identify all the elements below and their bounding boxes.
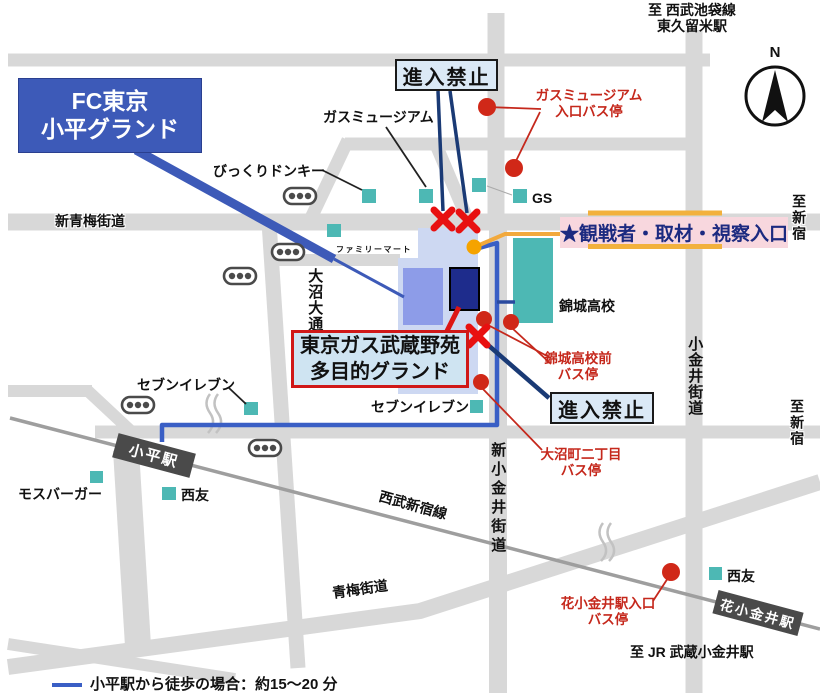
no-entry-label: 進入禁止 xyxy=(403,61,491,90)
direction-line2: 東久留米駅 xyxy=(627,18,757,34)
direction-jr-musashi-koganei: 至 JR 武蔵小金井駅 xyxy=(630,644,754,660)
legend-route-swatch xyxy=(52,683,82,687)
ground-name-line2: 多目的グランド xyxy=(300,359,460,385)
bus-stop-line1: 錦城高校前 xyxy=(532,351,624,367)
landmark-family-mart: ファミリーマート xyxy=(336,245,412,254)
ground-building xyxy=(450,268,479,310)
bus-stop-dot xyxy=(476,311,492,327)
road-station-access xyxy=(126,450,138,646)
traffic-light-icon xyxy=(249,440,281,456)
bus-stop-dot xyxy=(662,563,680,581)
gas-museum-square xyxy=(419,189,433,203)
bus-stop-line2: 入口バス停 xyxy=(528,104,650,120)
landmark-bikkuri-donkey: びっくりドンキー xyxy=(213,163,325,179)
bus-stop-gas-museum-entrance: ガスミュージアム 入口バス停 xyxy=(528,88,650,119)
ground-name-box: 東京ガス武蔵野苑 多目的グランド xyxy=(291,330,469,388)
bus-stop-dot xyxy=(505,159,523,177)
no-entry-box-north: 進入禁止 xyxy=(395,59,498,91)
legend-walk-note: 小平駅から徒歩の場合：約15～20 分 xyxy=(90,676,338,693)
direction-shinjuku-lower: 至新宿 xyxy=(789,399,805,447)
access-map: FC東京 小平グランド 進入禁止 進入禁止 ★観戦者・取材・視察入口 東京ガス武… xyxy=(0,0,820,693)
compass-icon xyxy=(746,67,804,125)
bus-stop-kinjo-mae: 錦城高校前 バス停 xyxy=(532,351,624,382)
fc-title-line2: 小平グランド xyxy=(41,116,179,144)
seiyu-east-square xyxy=(709,567,722,580)
seiyu-west-square xyxy=(162,487,176,500)
traffic-light-icon xyxy=(122,397,154,413)
direction-shinjuku-upper: 至新宿 xyxy=(791,194,807,242)
landmark-seven-eleven-east: セブンイレブン xyxy=(371,399,469,415)
traffic-light-icon xyxy=(284,188,316,204)
bus-stop-oonuma-2chome: 大沼町二丁目 バス停 xyxy=(533,447,629,478)
bus-stop-line2: バス停 xyxy=(533,463,629,479)
corner-shop-square xyxy=(472,178,486,192)
landmark-mos-burger: モスバーガー xyxy=(18,486,102,502)
gs-square xyxy=(513,189,527,203)
gas-museum-pointer xyxy=(386,127,426,187)
spectator-entrance-dot xyxy=(467,240,482,255)
fc-tokyo-ground-title-box: FC東京 小平グランド xyxy=(18,78,202,153)
ground-field xyxy=(403,268,443,325)
banner-bottom-line xyxy=(588,244,722,249)
compass-north-label: N xyxy=(767,44,783,61)
bus-stop-line1: 花小金井駅入口 xyxy=(552,596,664,612)
kinjo-high-school-block xyxy=(513,238,553,323)
direction-seibu-ikebukuro: 至 西武池袋線 東久留米駅 xyxy=(627,2,757,34)
traffic-light-icon xyxy=(224,268,256,284)
no-entry-label: 進入禁止 xyxy=(558,394,646,423)
bus-stop-dot xyxy=(473,374,489,390)
landmark-gs: GS xyxy=(532,190,552,206)
ground-name-line1: 東京ガス武蔵野苑 xyxy=(300,333,460,359)
road-label-shin-koganei: 新小金井街道 xyxy=(489,442,506,556)
landmark-seiyu-east: 西友 xyxy=(727,568,755,584)
bus-stop-line2: バス停 xyxy=(552,612,664,628)
bus-stop-dot xyxy=(503,314,519,330)
bus-stop-dot xyxy=(478,98,496,116)
seven-eleven-west-square xyxy=(244,402,258,415)
bus-stop-line1: ガスミュージアム xyxy=(528,88,650,104)
bus-stop-line1: 大沼町二丁目 xyxy=(533,447,629,463)
landmark-gas-museum: ガスミュージアム xyxy=(323,109,434,125)
direction-line1: 至 西武池袋線 xyxy=(627,2,757,18)
fc-title-line1: FC東京 xyxy=(41,88,179,116)
bus-stop-line2: バス停 xyxy=(532,367,624,383)
no-entry-route-1 xyxy=(438,91,443,211)
mos-burger-square xyxy=(90,471,103,483)
landmark-seiyu-west: 西友 xyxy=(181,487,209,503)
family-mart-square xyxy=(327,224,341,237)
traffic-light-icon xyxy=(272,244,304,260)
seven-eleven-east-square xyxy=(470,400,483,413)
landmark-kinjo-high-school: 錦城高校 xyxy=(559,298,615,314)
road-label-koganei: 小金井街道 xyxy=(686,336,703,416)
road-label-shin-oume: 新青梅街道 xyxy=(55,213,125,229)
bikkuri-donkey-square xyxy=(362,189,376,203)
landmark-seven-eleven-west: セブンイレブン xyxy=(137,377,235,393)
spectator-entrance-label: ★観戦者・取材・視察入口 xyxy=(560,219,788,246)
bus-stop-hana-koganei-entrance: 花小金井駅入口 バス停 xyxy=(552,596,664,627)
no-entry-box-south: 進入禁止 xyxy=(550,392,654,424)
